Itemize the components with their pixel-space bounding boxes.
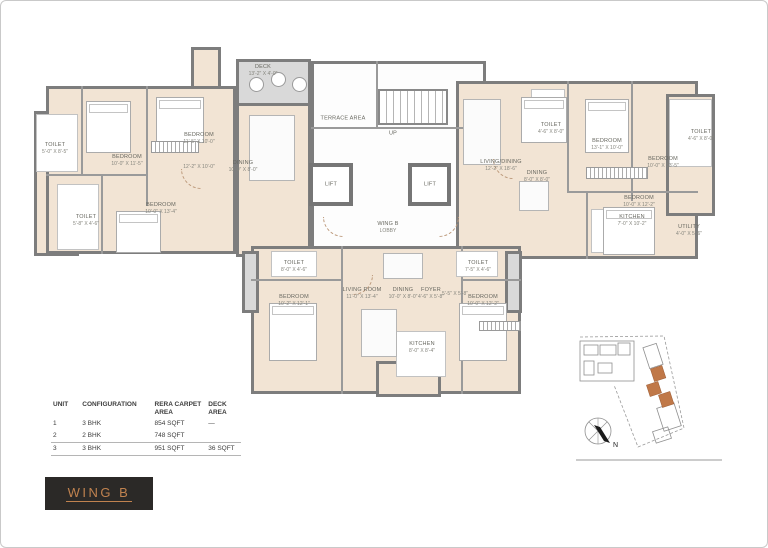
room-label: TOILET7'-5" X 4'-6" [465,260,491,274]
cell-deck: — [206,418,241,430]
cell-config: 2 BHK [80,430,152,443]
room-label: DINING10'-0" X 8'-0" [229,160,258,174]
room-label: UP [389,130,397,137]
table-row: 2 2 BHK 748 SQFT [51,430,241,443]
room-label: LIFT [424,181,436,188]
room-label: UTILITY4'-0" X 5'-6" [676,224,702,238]
keyplan-highlighted-wing [646,365,673,407]
room-label: TERRACE AREA [321,115,366,122]
north-label: N [613,442,618,449]
room-label: DECK13'-2" X 4'-0" [249,64,278,78]
room-label: BEDROOM10'-0" X 12'-2" [467,294,499,308]
room-label: LIFT [325,181,337,188]
floorplan-sheet: TOILET5'-0" X 8'-5"BEDROOM10'-0" X 11'-5… [0,0,768,548]
cell-deck: 36 SQFT [206,442,241,455]
key-plan: N [574,333,726,465]
room-label: TOILET4'-6" X 8'-0" [688,129,714,143]
wing-label: WING B [66,485,133,502]
room-label: BEDROOM11'-5" X 10'-0" [183,132,214,146]
room-label: TOILET4'-6" X 8'-0" [538,122,564,136]
cell-deck [206,430,241,443]
header-deck-area: DECK AREA [206,400,241,418]
room-label: TOILET5'-0" X 8'-5" [42,142,68,156]
room-label: BEDROOM10'-0" X 13'-4" [145,202,177,216]
cell-carpet: 951 SQFT [153,442,207,455]
cell-config: 3 BHK [80,442,152,455]
room-label: TOILET8'-0" X 4'-6" [281,260,307,274]
cell-config: 3 BHK [80,418,152,430]
room-label: FOYER4'-6" X 5'-8" [418,287,444,301]
table-row: 3 3 BHK 951 SQFT 36 SQFT [51,442,241,455]
area-table: UNIT CONFIGURATION RERA CARPET AREA DECK… [51,400,241,456]
room-label: WING BLOBBY [377,221,398,235]
wing-badge: WING B [45,477,153,510]
room-label: TOILET5'-8" X 4'-6" [73,214,99,228]
room-label: BEDROOM10'-2" X 12'-1" [278,294,310,308]
site-boundary [580,336,684,447]
room-label: 12'-2" X 10'-0" [183,164,215,171]
room-label: DINING10'-0" X 8'-0" [389,287,418,301]
room-label: BEDROOM13'-1" X 10'-0" [591,138,623,152]
cell-carpet: 748 SQFT [153,430,207,443]
cell-carpet: 854 SQFT [153,418,207,430]
room-label: BEDROOM10'-0" X 12'-2" [623,195,655,209]
cell-unit: 1 [51,418,80,430]
north-compass: N [585,418,618,449]
room-label: DINING8'-0" X 8'-0" [524,170,550,184]
north-needle [594,425,610,443]
table-row: 1 3 BHK 854 SQFT — [51,418,241,430]
cell-unit: 2 [51,430,80,443]
room-label: 5'-5" X 5'-8" [442,291,468,298]
room-label: KITCHEN7'-0" X 10'-2" [618,214,647,228]
header-configuration: CONFIGURATION [80,400,152,418]
room-label: BEDROOM10'-0" X 13'-5" [647,156,679,170]
room-label: KITCHEN8'-0" X 8'-4" [409,341,435,355]
table-header-row: UNIT CONFIGURATION RERA CARPET AREA DECK… [51,400,241,418]
header-unit: UNIT [51,400,80,418]
header-rera-carpet-area: RERA CARPET AREA [153,400,207,418]
room-label: BEDROOM10'-0" X 11'-5" [111,154,142,168]
cell-unit: 3 [51,442,80,455]
room-label: LIVING/DINING12'-2" X 18'-6" [480,159,521,173]
room-label: LIVING ROOM11'-0" X 13'-4" [343,287,382,301]
